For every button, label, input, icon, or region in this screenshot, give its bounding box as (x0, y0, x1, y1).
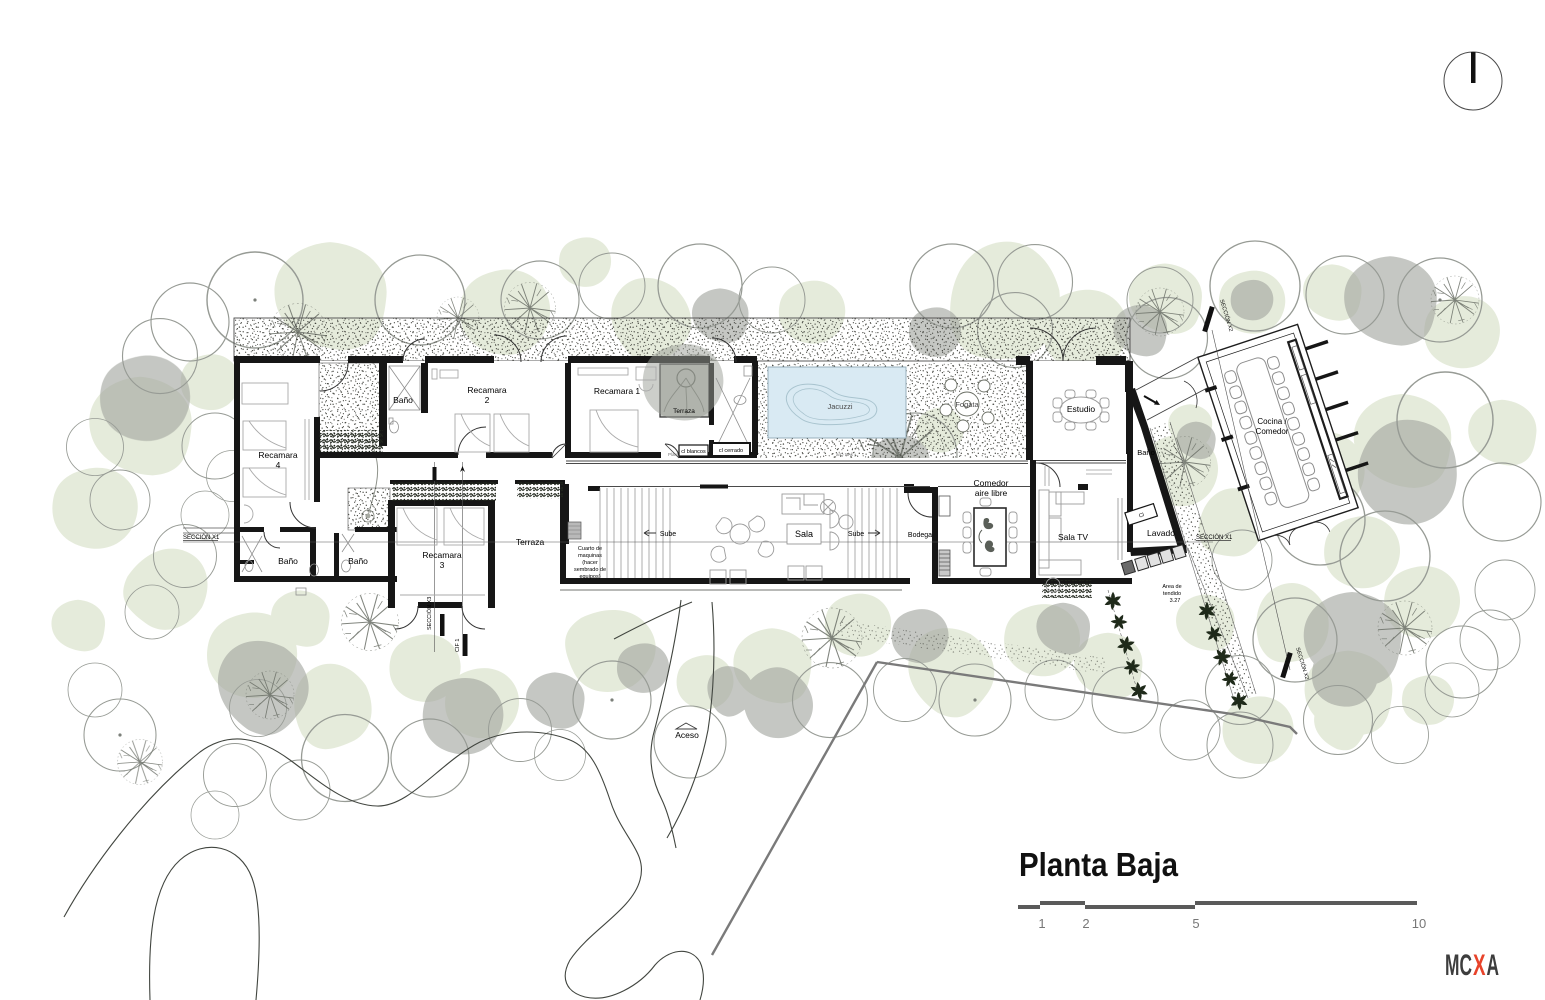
svg-text:Recamara: Recamara (467, 385, 506, 395)
svg-text:SECCIÓN X3: SECCIÓN X3 (426, 597, 433, 630)
svg-text:Terraza: Terraza (673, 408, 695, 415)
svg-text:5: 5 (1192, 916, 1199, 931)
svg-text:2: 2 (1082, 916, 1089, 931)
svg-text:Recamara: Recamara (422, 550, 461, 560)
svg-text:A: A (1487, 949, 1500, 982)
svg-text:SECCIÓN X1: SECCIÓN X1 (183, 534, 220, 541)
svg-text:X: X (1473, 949, 1486, 982)
svg-text:Bodega: Bodega (908, 532, 932, 539)
svg-text:Baño: Baño (348, 556, 368, 566)
svg-text:Recamara 1: Recamara 1 (594, 386, 641, 396)
svg-text:Aceso: Aceso (675, 730, 699, 740)
svg-text:MC: MC (1445, 949, 1472, 982)
svg-text:1: 1 (1038, 916, 1045, 931)
svg-text:10: 10 (1412, 916, 1426, 931)
svg-text:CIF 1: CIF 1 (455, 639, 461, 652)
svg-text:(hacer: (hacer (582, 560, 598, 566)
svg-text:Baño: Baño (278, 556, 298, 566)
svg-text:Sala: Sala (795, 529, 813, 539)
svg-text:Cocina /: Cocina / (1257, 417, 1287, 426)
svg-text:cl cerrado: cl cerrado (719, 448, 743, 454)
svg-text:Fogata: Fogata (955, 400, 979, 409)
svg-text:Lavado: Lavado (1147, 528, 1175, 538)
svg-text:Terraza: Terraza (516, 537, 545, 547)
svg-text:cl blancos: cl blancos (681, 449, 706, 455)
svg-text:2: 2 (485, 395, 490, 405)
svg-text:tendido: tendido (1163, 591, 1181, 597)
svg-text:equipos): equipos) (579, 574, 600, 580)
svg-text:aire libre: aire libre (975, 488, 1008, 498)
svg-text:Baño: Baño (1137, 448, 1155, 457)
svg-text:Area de: Area de (1162, 584, 1181, 590)
svg-text:3: 3 (440, 560, 445, 570)
svg-text:Estudio: Estudio (1067, 404, 1096, 414)
svg-text:Sube: Sube (660, 531, 676, 538)
svg-text:Jacuzzi: Jacuzzi (827, 402, 852, 411)
svg-text:Sala TV: Sala TV (1058, 532, 1088, 542)
svg-text:Cuarto de: Cuarto de (578, 546, 602, 552)
svg-text:Baño: Baño (393, 395, 413, 405)
svg-text:maquinas: maquinas (578, 553, 602, 559)
svg-text:Recamara: Recamara (258, 450, 297, 460)
svg-text:4: 4 (276, 460, 281, 470)
svg-text:sembrado de: sembrado de (574, 567, 606, 573)
svg-text:arQ tshk: arQ tshk (836, 452, 854, 457)
svg-text:Planta Baja: Planta Baja (1019, 846, 1179, 883)
svg-text:Comedor: Comedor (1256, 427, 1289, 436)
svg-text:Comedor: Comedor (974, 478, 1009, 488)
svg-text:3.27: 3.27 (1170, 598, 1181, 604)
svg-text:Sube: Sube (848, 531, 864, 538)
